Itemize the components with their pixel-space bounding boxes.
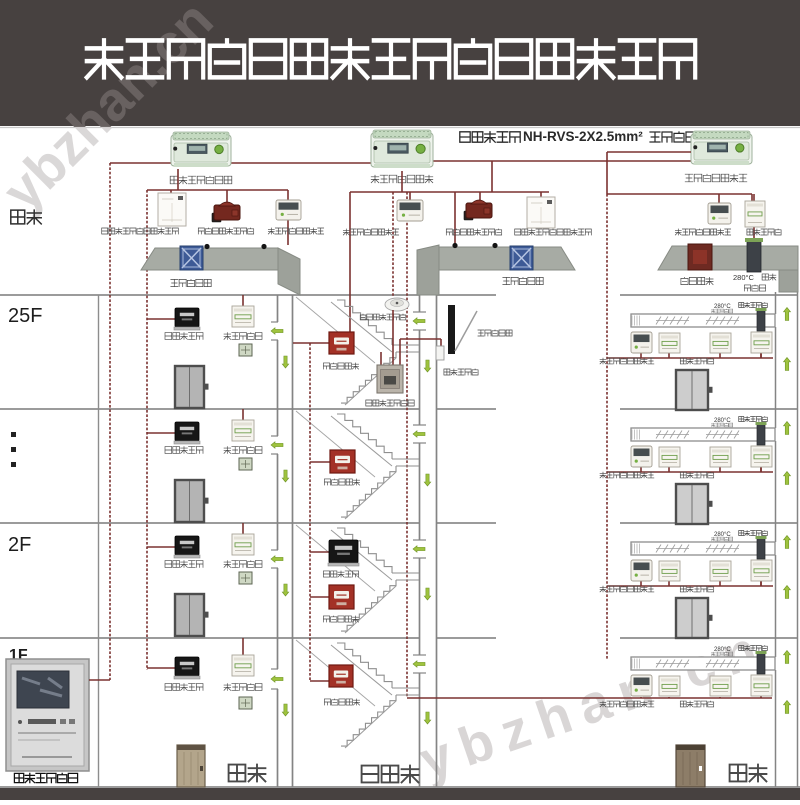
- svg-text:2F: 2F: [8, 534, 31, 556]
- svg-text:25F: 25F: [8, 305, 42, 327]
- svg-text:NH-RVS-2X2.5mm²: NH-RVS-2X2.5mm²: [523, 129, 643, 144]
- svg-text:280°C: 280°C: [733, 273, 755, 282]
